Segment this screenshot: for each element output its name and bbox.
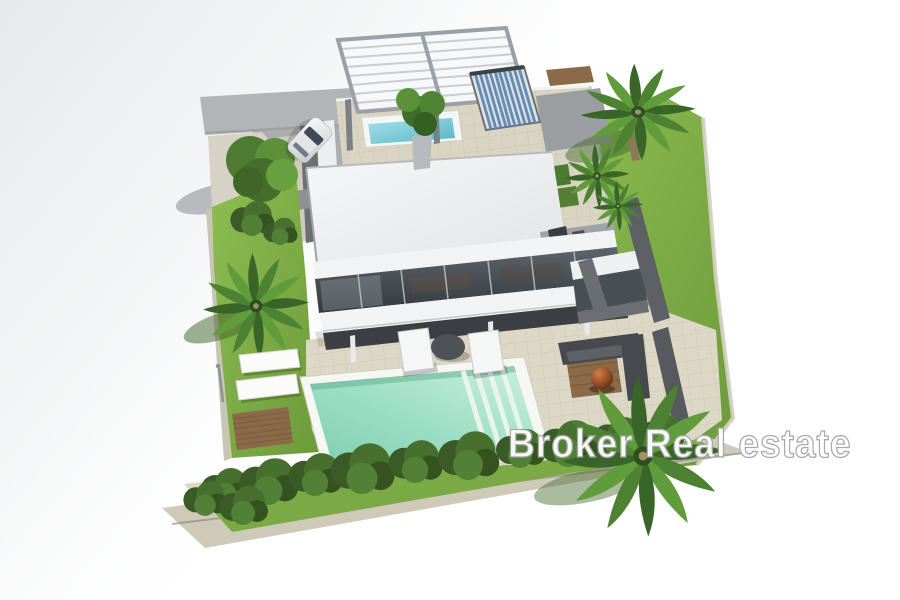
sun-lounger xyxy=(398,328,434,372)
column xyxy=(350,335,356,363)
wooden-deck xyxy=(232,407,293,450)
sun-lounger xyxy=(468,330,504,374)
round-table xyxy=(431,334,465,360)
fire-bowl xyxy=(591,367,613,389)
render-image: Broker Real estate xyxy=(0,0,900,600)
watermark-text: Broker Real estate xyxy=(508,424,851,464)
render-canvas xyxy=(0,0,900,600)
